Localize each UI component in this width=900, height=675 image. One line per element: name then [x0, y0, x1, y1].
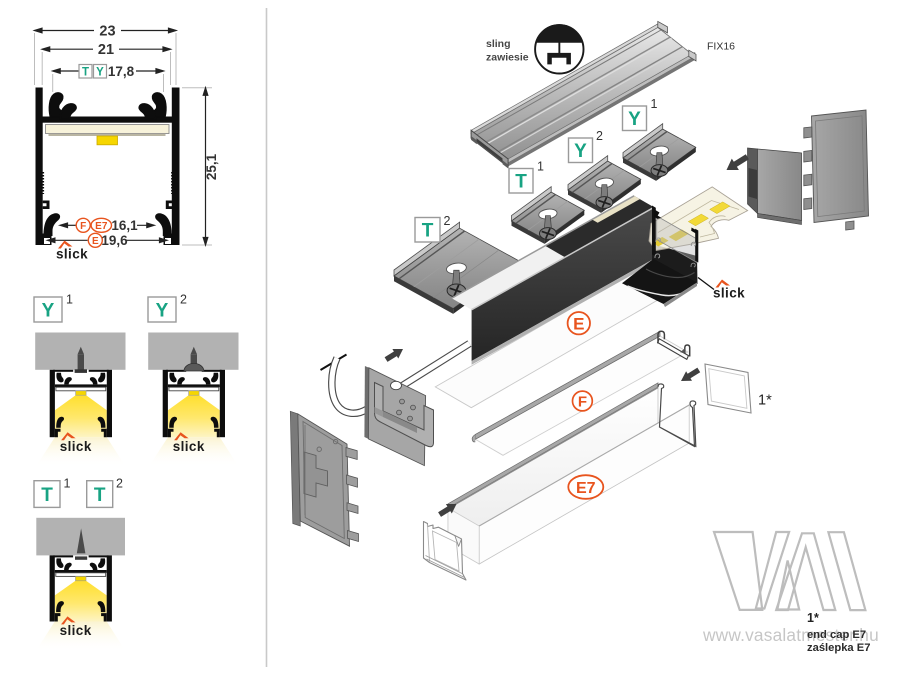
svg-text:1*: 1*	[807, 611, 819, 625]
svg-text:23: 23	[99, 24, 115, 40]
svg-text:Y: Y	[96, 67, 104, 79]
svg-text:1: 1	[64, 477, 71, 491]
svg-text:F: F	[578, 394, 587, 411]
svg-text:1: 1	[651, 97, 658, 111]
svg-text:2: 2	[596, 129, 603, 143]
svg-text:21: 21	[98, 42, 114, 58]
svg-text:E: E	[92, 236, 99, 247]
svg-text:FIX16: FIX16	[707, 41, 735, 53]
svg-text:T: T	[422, 221, 434, 242]
svg-text:2: 2	[180, 293, 187, 307]
svg-text:zawiesie: zawiesie	[486, 52, 529, 64]
svg-text:F: F	[80, 221, 86, 232]
svg-text:1: 1	[66, 293, 73, 307]
svg-text:slick: slick	[56, 247, 88, 262]
svg-text:T: T	[82, 67, 89, 79]
svg-text:E: E	[573, 315, 584, 334]
svg-text:2: 2	[116, 477, 123, 491]
svg-text:Y: Y	[156, 301, 169, 322]
svg-text:1*: 1*	[758, 393, 772, 409]
svg-text:17,8: 17,8	[108, 64, 135, 79]
svg-text:Y: Y	[574, 141, 587, 162]
svg-text:E7: E7	[95, 221, 108, 232]
svg-text:25,1: 25,1	[204, 153, 219, 180]
svg-text:T: T	[94, 485, 106, 506]
svg-text:slick: slick	[60, 623, 92, 638]
svg-text:T: T	[515, 172, 527, 193]
svg-text:slick: slick	[173, 439, 205, 454]
svg-text:19,6: 19,6	[101, 233, 128, 248]
svg-text:zaślepka E7: zaślepka E7	[807, 642, 870, 654]
svg-text:2: 2	[444, 214, 451, 228]
svg-text:Y: Y	[628, 109, 641, 130]
svg-text:Y: Y	[42, 301, 55, 322]
svg-text:16,1: 16,1	[111, 218, 138, 233]
svg-text:sling: sling	[486, 38, 511, 50]
svg-text:end cap E7: end cap E7	[807, 629, 866, 641]
svg-text:1: 1	[537, 160, 544, 174]
svg-text:T: T	[41, 485, 53, 506]
svg-text:slick: slick	[60, 439, 92, 454]
svg-text:slick: slick	[713, 286, 745, 301]
svg-text:E7: E7	[576, 480, 596, 497]
